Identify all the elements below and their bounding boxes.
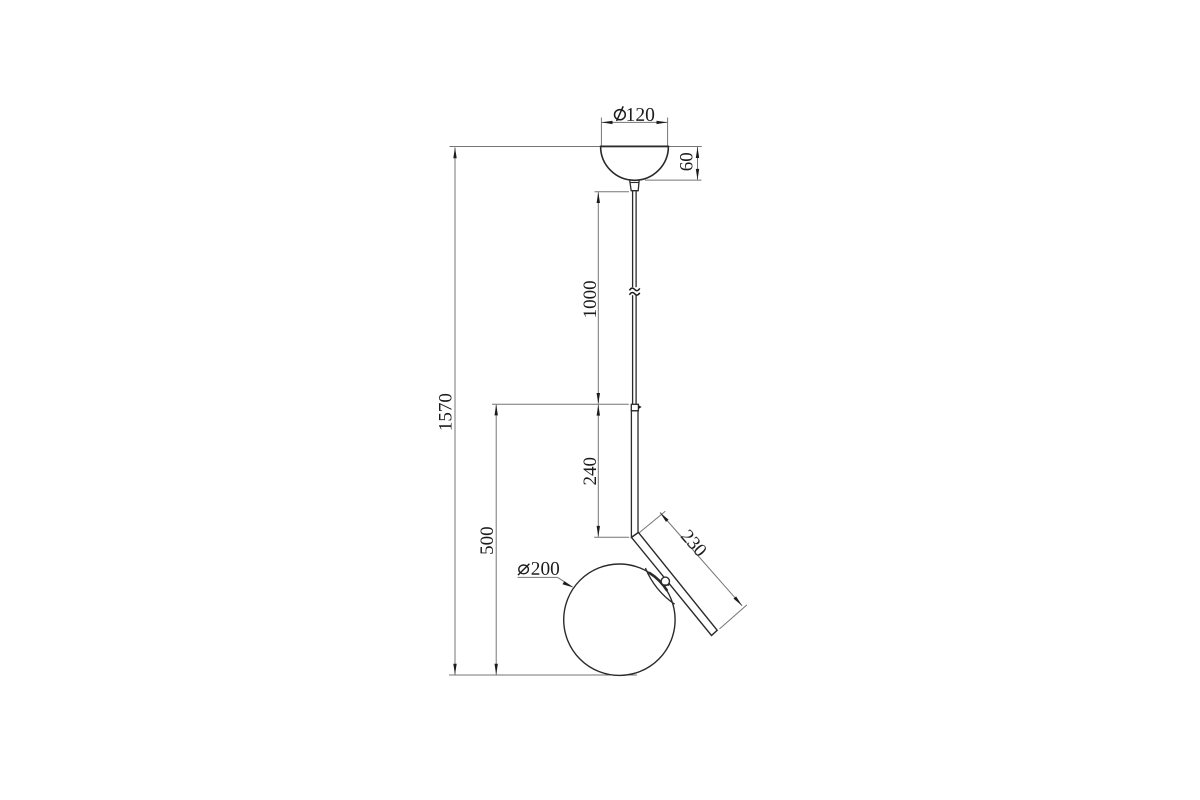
svg-text:120: 120	[626, 105, 655, 126]
svg-text:60: 60	[676, 152, 697, 171]
svg-text:240: 240	[580, 457, 601, 486]
svg-text:200: 200	[531, 559, 560, 580]
svg-text:1570: 1570	[436, 393, 457, 431]
svg-text:500: 500	[477, 526, 498, 555]
svg-text:1000: 1000	[580, 280, 601, 318]
